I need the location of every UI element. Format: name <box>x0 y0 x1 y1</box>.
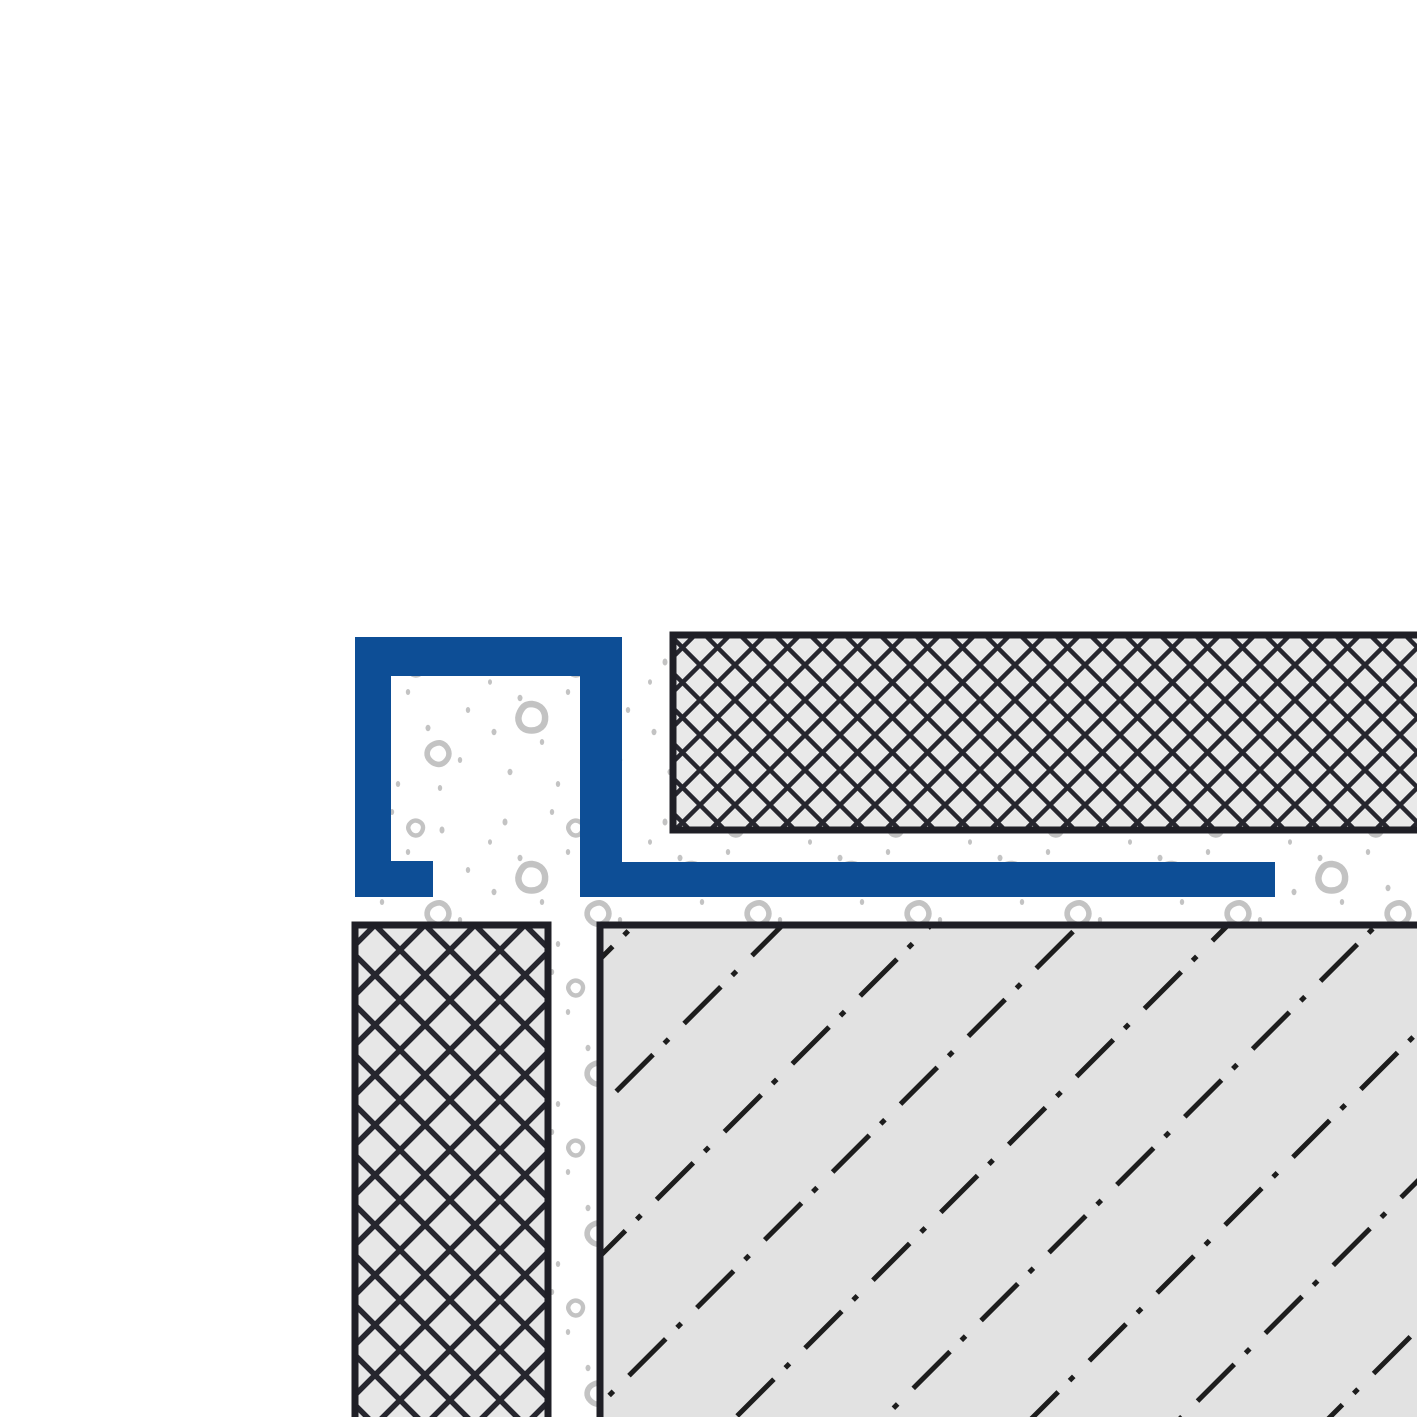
mortar-joint-top <box>622 637 673 832</box>
cross-section-diagram <box>0 0 1417 1417</box>
substrate <box>600 925 1417 1417</box>
diagram-stage <box>0 0 1417 1417</box>
tile-top <box>673 635 1417 830</box>
tile-left <box>355 925 548 1417</box>
